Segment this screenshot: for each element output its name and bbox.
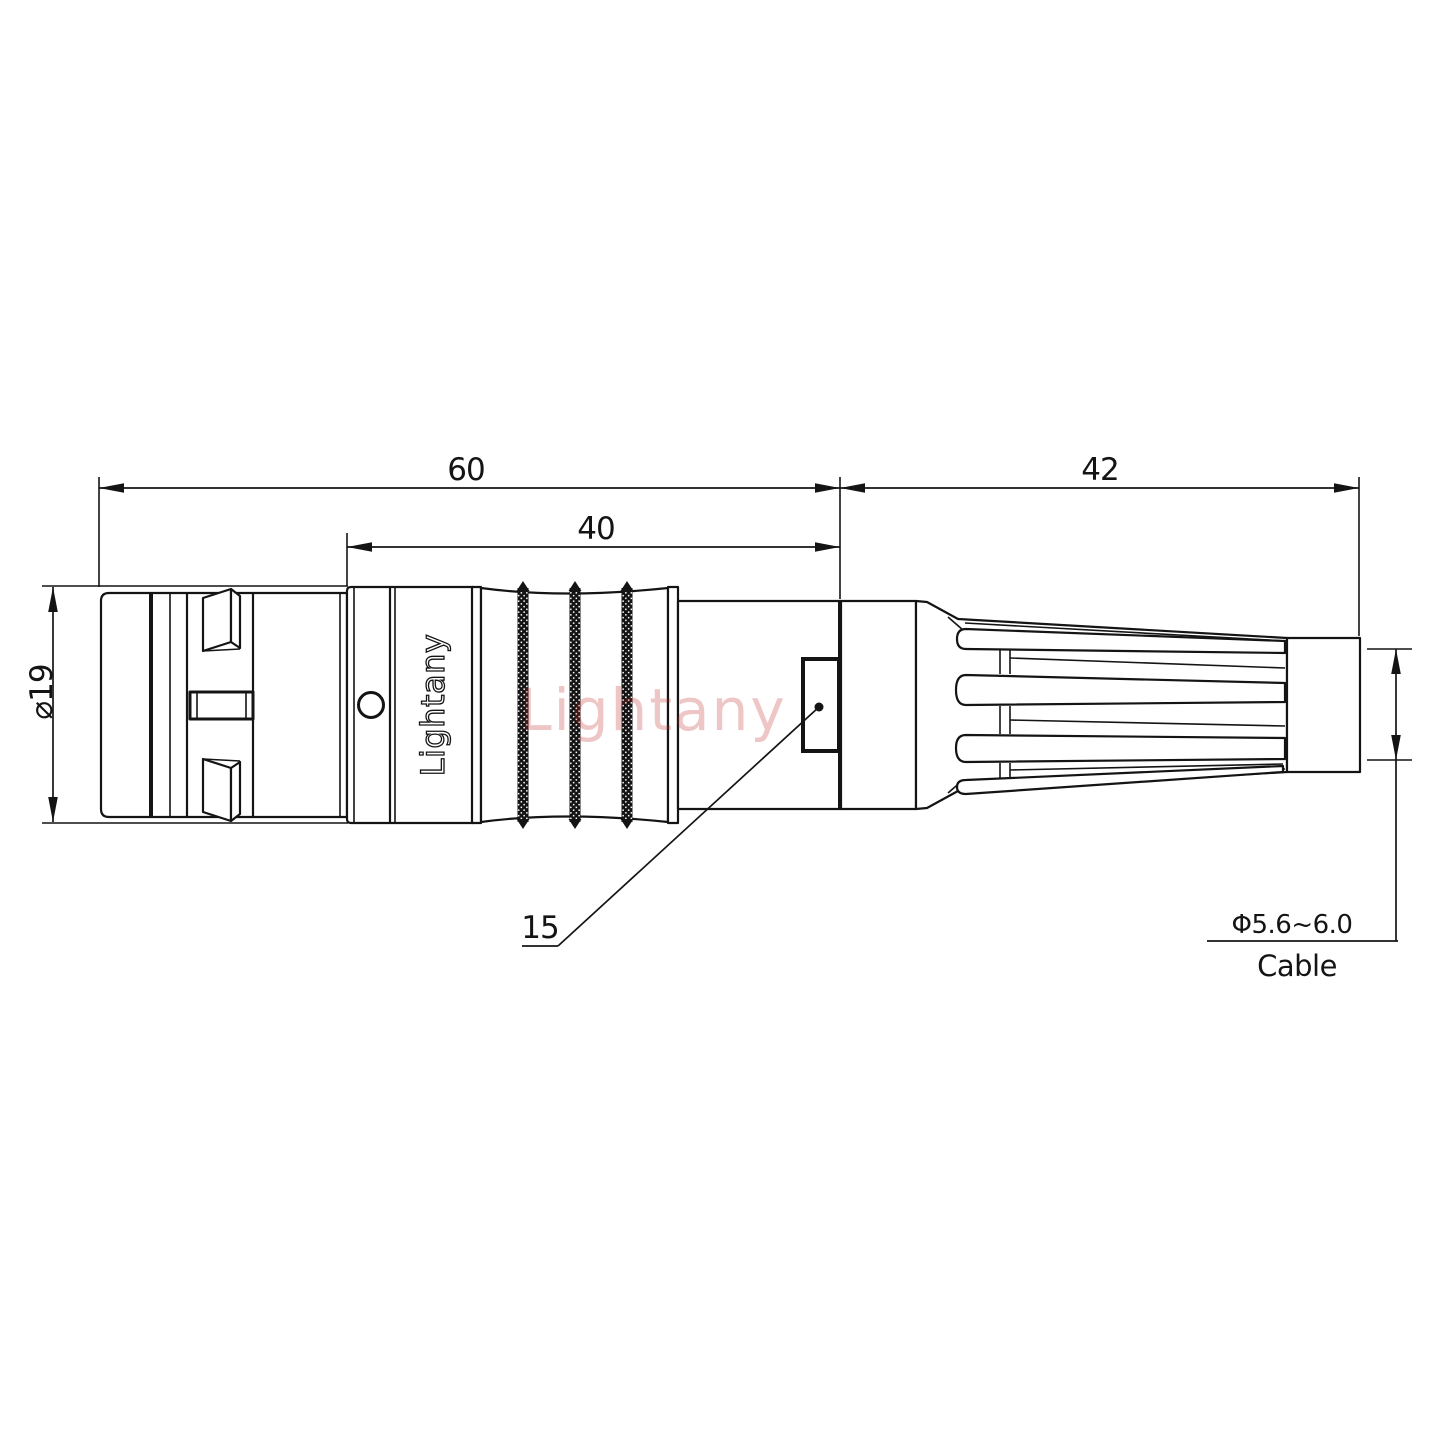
coupling-ring: Lightany: [347, 587, 473, 823]
dim-shell-diameter-label: ⌀19: [24, 664, 60, 719]
connector-front-shell: [101, 589, 347, 821]
coupling-ring-hole: [359, 693, 384, 718]
shell-center-slot: [190, 692, 253, 719]
dimension-total-length-60: [99, 477, 840, 587]
dim-total-length-label: 60: [447, 452, 484, 488]
boot-fin-3: [956, 735, 1285, 762]
dim-cable-diameter-label: Φ5.6~6.0: [1232, 910, 1353, 940]
dim-feature-size-label: 15: [521, 910, 558, 946]
brand-engraving: Lightany: [414, 634, 452, 777]
technical-drawing-canvas: Lightany: [0, 0, 1440, 1440]
cable-exit-cap: [1287, 638, 1360, 772]
cable-label: Cable: [1257, 949, 1337, 983]
dim-body-length-label: 40: [577, 511, 614, 547]
brand-watermark: Lightany: [519, 676, 786, 744]
bayonet-key-bottom: [203, 759, 240, 821]
strain-relief-boot: [841, 601, 1360, 809]
bayonet-key-top: [203, 589, 240, 651]
dim-boot-length-label: 42: [1081, 452, 1118, 488]
